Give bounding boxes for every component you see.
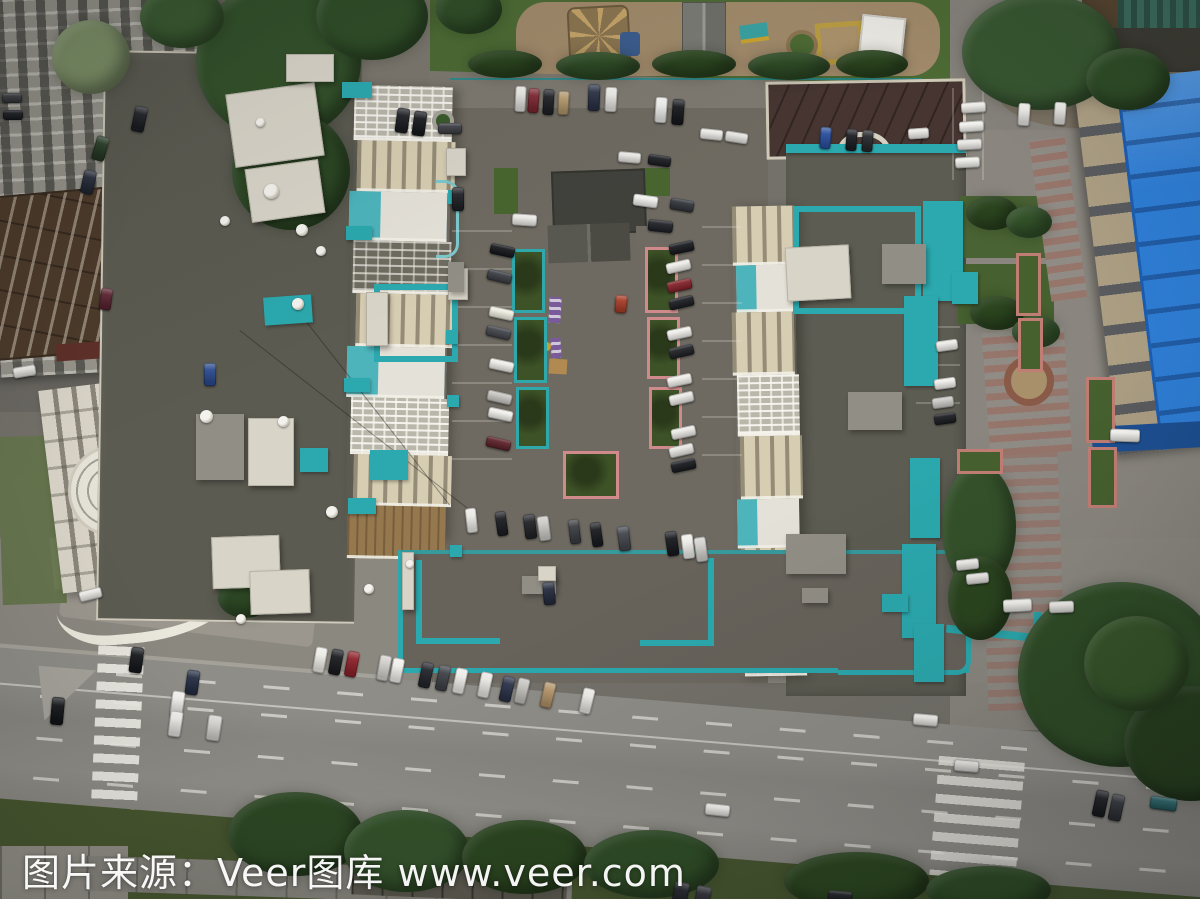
car <box>654 97 668 124</box>
rooftop-structure <box>245 159 326 223</box>
car <box>861 130 874 153</box>
rooftop-structure <box>446 148 466 176</box>
car <box>668 240 695 256</box>
car <box>486 268 513 284</box>
car <box>3 110 23 120</box>
car <box>488 358 515 374</box>
car <box>394 107 410 134</box>
tree <box>1084 616 1189 711</box>
rooftop-structure <box>882 594 908 612</box>
rooftop-structure <box>348 498 376 514</box>
scene-objects-layer <box>0 0 1200 899</box>
car <box>542 89 554 116</box>
satellite-dish <box>256 118 265 127</box>
car <box>494 510 508 536</box>
rooftop-structure <box>448 262 464 292</box>
rooftop-structure <box>538 566 556 581</box>
rooftop-structure <box>346 226 372 240</box>
satellite-dish <box>326 506 338 518</box>
car <box>933 377 956 391</box>
rooftop-structure <box>286 54 334 82</box>
car <box>961 101 987 114</box>
tree <box>52 20 130 94</box>
aerial-photo: 图片来源：Veer图库 www.veer.com <box>0 0 1200 899</box>
flower-bed <box>1088 447 1117 508</box>
car <box>1017 103 1031 127</box>
satellite-dish <box>200 410 213 423</box>
tree <box>784 852 929 899</box>
satellite-dish <box>292 298 304 310</box>
rooftop-structure <box>263 294 313 325</box>
watermark-text: 图片来源：Veer图库 www.veer.com <box>22 842 686 897</box>
rooftop-structure <box>370 450 408 480</box>
rooftop-structure <box>882 244 926 284</box>
car <box>130 105 148 133</box>
car <box>1049 601 1074 614</box>
car <box>513 677 531 705</box>
car <box>512 213 538 227</box>
satellite-dish <box>264 184 279 199</box>
car <box>959 120 985 133</box>
car <box>50 696 65 725</box>
car <box>542 582 556 606</box>
satellite-dish <box>406 560 414 568</box>
car <box>724 130 748 144</box>
car <box>704 803 730 818</box>
car <box>486 389 513 405</box>
car <box>452 187 464 211</box>
car <box>1053 102 1067 126</box>
car <box>328 648 345 676</box>
car <box>828 890 853 899</box>
car <box>1091 789 1109 818</box>
car <box>632 193 658 208</box>
courtyard-planter <box>512 249 545 313</box>
car <box>670 458 697 474</box>
car <box>664 530 679 556</box>
car <box>488 306 515 322</box>
car <box>536 515 551 541</box>
rooftop-structure <box>914 624 944 682</box>
car <box>908 127 930 139</box>
car <box>618 151 642 164</box>
rooftop-structure <box>196 414 244 480</box>
car <box>957 138 983 150</box>
car <box>485 324 512 340</box>
car <box>1107 793 1125 822</box>
rooftop-structure <box>785 244 852 301</box>
car <box>514 86 526 113</box>
car <box>589 521 603 547</box>
satellite-dish <box>296 224 308 236</box>
car <box>681 533 696 559</box>
rooftop-structure <box>848 392 902 430</box>
car <box>913 713 939 727</box>
car <box>204 363 216 386</box>
car <box>438 123 462 134</box>
car <box>954 759 980 773</box>
satellite-dish <box>236 614 246 624</box>
car <box>451 667 468 695</box>
car <box>80 169 98 195</box>
rooftop-structure <box>550 338 561 359</box>
car <box>647 153 671 167</box>
car <box>184 669 200 696</box>
car <box>167 710 183 738</box>
tree <box>468 50 542 78</box>
tree <box>836 50 908 78</box>
flower-bed <box>1018 318 1043 372</box>
car <box>604 87 617 113</box>
rooftop-structure <box>910 458 940 538</box>
car <box>417 661 434 689</box>
car <box>205 714 222 742</box>
rooftop-structure <box>342 82 372 98</box>
car <box>12 364 37 379</box>
car <box>819 127 832 150</box>
rooftop-structure <box>446 330 458 344</box>
satellite-dish <box>316 246 326 256</box>
car <box>489 243 516 259</box>
car <box>699 128 723 141</box>
car <box>614 295 628 314</box>
car <box>487 407 514 423</box>
car <box>955 156 981 168</box>
car <box>476 671 493 699</box>
car <box>1003 598 1033 612</box>
car <box>312 646 328 674</box>
courtyard-planter <box>516 387 549 449</box>
rooftop-structure <box>447 395 459 407</box>
rooftop-structure <box>249 569 310 615</box>
rooftop-structure <box>548 297 561 324</box>
satellite-dish <box>278 416 289 427</box>
car <box>578 687 596 715</box>
car <box>1149 795 1178 812</box>
rooftop-structure <box>300 448 328 472</box>
rooftop-structure <box>450 545 462 557</box>
car <box>485 435 512 451</box>
satellite-dish <box>220 216 230 226</box>
rooftop-structure <box>549 359 568 375</box>
car <box>465 507 479 533</box>
rooftop-structure <box>786 144 966 153</box>
car <box>523 513 538 539</box>
car <box>693 536 708 562</box>
car <box>671 99 685 126</box>
rooftop-structure <box>344 378 370 392</box>
courtyard-planter <box>563 451 619 499</box>
car <box>99 287 114 310</box>
car <box>2 93 22 103</box>
tree <box>748 52 830 80</box>
car <box>78 586 103 602</box>
car <box>647 219 673 234</box>
tree <box>436 0 502 34</box>
car <box>1110 428 1140 442</box>
car <box>568 518 582 544</box>
rooftop-structure <box>802 588 828 603</box>
tree <box>652 50 736 78</box>
car <box>669 197 695 213</box>
car <box>344 650 361 678</box>
car <box>933 412 956 426</box>
car <box>557 91 569 116</box>
car <box>128 646 144 674</box>
car <box>617 525 632 551</box>
car <box>931 396 954 410</box>
tree <box>556 52 640 80</box>
satellite-dish <box>364 584 374 594</box>
courtyard-planter <box>514 317 547 383</box>
car <box>411 110 427 137</box>
tree <box>926 866 1051 899</box>
tree <box>1086 48 1170 110</box>
car <box>527 88 540 114</box>
car <box>588 84 601 111</box>
rooftop-structure <box>786 534 846 574</box>
rooftop-structure <box>366 292 388 346</box>
car <box>434 664 451 692</box>
car <box>539 681 557 709</box>
rooftop-structure <box>225 82 324 168</box>
rooftop-structure <box>952 272 978 304</box>
flower-bed <box>1016 253 1041 316</box>
car <box>845 129 858 152</box>
flower-bed <box>957 449 1003 474</box>
rooftop-structure <box>248 418 294 486</box>
car <box>935 339 958 353</box>
car <box>91 135 110 163</box>
tree <box>1006 206 1052 238</box>
